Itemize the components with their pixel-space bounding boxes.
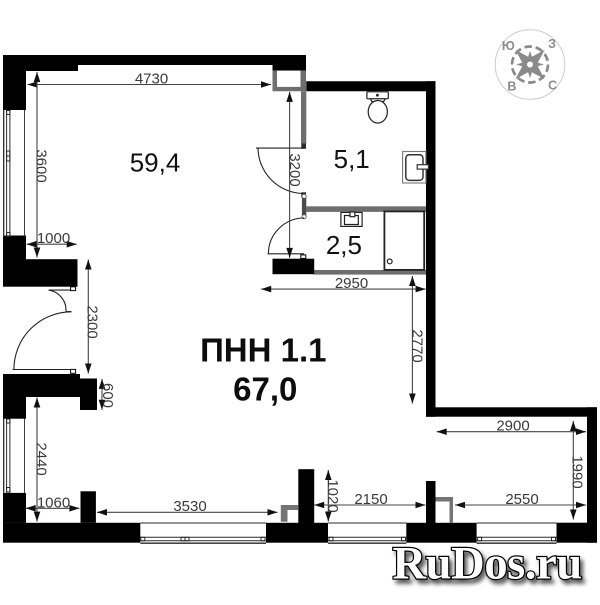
svg-text:2950: 2950 — [335, 275, 368, 292]
svg-text:С: С — [548, 79, 557, 93]
svg-text:1020: 1020 — [324, 479, 341, 512]
svg-text:2,5: 2,5 — [326, 230, 362, 260]
svg-text:З: З — [548, 37, 556, 51]
svg-text:67,0: 67,0 — [233, 371, 297, 408]
svg-text:600: 600 — [99, 383, 116, 408]
svg-text:2300: 2300 — [84, 305, 101, 338]
svg-text:2150: 2150 — [354, 491, 387, 508]
svg-text:5,1: 5,1 — [334, 144, 370, 174]
svg-text:1060: 1060 — [37, 495, 70, 512]
svg-text:В: В — [507, 80, 516, 94]
svg-text:1990: 1990 — [569, 455, 586, 488]
svg-text:2440: 2440 — [32, 442, 49, 475]
svg-text:2900: 2900 — [496, 418, 529, 435]
svg-text:2770: 2770 — [409, 329, 426, 362]
svg-text:1000: 1000 — [37, 230, 70, 247]
svg-text:Ю: Ю — [502, 39, 515, 53]
svg-text:ПНН 1.1: ПНН 1.1 — [200, 332, 326, 369]
svg-text:RuDos.ru: RuDos.ru — [393, 539, 582, 590]
svg-text:3530: 3530 — [173, 498, 206, 515]
svg-text:3200: 3200 — [286, 153, 303, 186]
svg-text:4730: 4730 — [135, 71, 168, 88]
svg-text:3600: 3600 — [32, 149, 49, 182]
svg-text:59,4: 59,4 — [130, 147, 181, 177]
svg-text:2550: 2550 — [505, 491, 538, 508]
